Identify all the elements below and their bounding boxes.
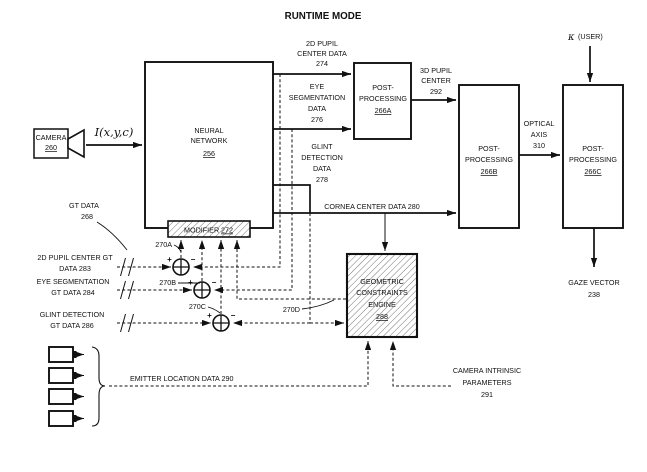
- adder-b-minus-sign: −: [212, 278, 217, 287]
- figure-title: RUNTIME MODE: [285, 11, 362, 22]
- gce-label-1: GEOMETRIC: [360, 277, 404, 286]
- background: [0, 0, 647, 472]
- post-b-label-2: PROCESSING: [465, 155, 513, 164]
- glint-label-2: DETECTION: [301, 153, 343, 162]
- post-a-label-1: POST-: [372, 83, 394, 92]
- kappa-symbol: κ: [567, 32, 575, 43]
- nn-label-2: NETWORK: [191, 136, 228, 145]
- gce-label-2: CONSTRAINTS: [356, 288, 408, 297]
- emitter-box: [49, 411, 73, 426]
- adder-c-minus-sign: −: [231, 311, 236, 320]
- glint-label-3: DATA: [313, 164, 331, 173]
- pupil2d-label-1: 2D PUPIL: [306, 39, 338, 48]
- pupil3d-label-2: CENTER: [421, 76, 451, 85]
- camera-ref: 260: [45, 143, 57, 152]
- post-b-ref: 266B: [481, 167, 498, 176]
- runtime-mode-diagram: RUNTIME MODE CAMERA 260 I(x,y,c) NEURAL …: [0, 0, 647, 472]
- gt-pupil-label-2: DATA 283: [59, 264, 91, 273]
- pupil2d-label-2: CENTER DATA: [297, 49, 347, 58]
- gt-data-label: GT DATA: [69, 201, 99, 210]
- eyeseg-label-3: DATA: [308, 104, 326, 113]
- optical-axis-label-2: AXIS: [531, 130, 548, 139]
- modifier-label: MODIFIER: [184, 226, 219, 235]
- glint-label-1: GLINT: [311, 142, 333, 151]
- glint-ref: 278: [316, 175, 328, 184]
- post-c-label-1: POST-: [582, 144, 604, 153]
- gce-label-3: ENGINE: [368, 300, 396, 309]
- gaze-label: GAZE VECTOR: [568, 278, 619, 287]
- post-a-ref: 266A: [375, 106, 392, 115]
- label-270b: 270B: [159, 278, 176, 287]
- modifier-ref: 272: [221, 226, 233, 235]
- nn-ref: 256: [203, 149, 215, 158]
- pupil2d-ref: 274: [316, 59, 328, 68]
- adder-a-minus-sign: −: [191, 255, 196, 264]
- adder-b-plus-sign: +: [188, 278, 193, 287]
- camera-intrinsic-label-1: CAMERA INTRINSIC: [453, 366, 521, 375]
- post-b-label-1: POST-: [478, 144, 500, 153]
- camera-intrinsic-ref: 291: [481, 390, 493, 399]
- emitter-location-label: EMITTER LOCATION DATA 290: [130, 374, 233, 383]
- gt-glint-label-2: GT DATA 286: [50, 321, 94, 330]
- camera-label: CAMERA: [36, 133, 67, 142]
- emitter-nub-icon: [73, 372, 77, 379]
- nn-label-1: NEURAL: [194, 126, 223, 135]
- kappa-label: (USER): [578, 32, 603, 41]
- cornea-label: CORNEA CENTER DATA 280: [324, 202, 420, 211]
- image-signal-label: I(x,y,c): [94, 125, 134, 139]
- eyeseg-ref: 276: [311, 115, 323, 124]
- post-c-label-2: PROCESSING: [569, 155, 617, 164]
- gt-eyeseg-label-1: EYE SEGMENTATION: [37, 277, 110, 286]
- optical-axis-ref: 310: [533, 141, 545, 150]
- emitter-nub-icon: [73, 393, 77, 400]
- gt-data-ref: 268: [81, 212, 93, 221]
- emitter-nub-icon: [73, 351, 77, 358]
- figure-canvas: RUNTIME MODE CAMERA 260 I(x,y,c) NEURAL …: [0, 0, 647, 472]
- camera-intrinsic-label-2: PARAMETERS: [463, 378, 512, 387]
- emitter-box: [49, 347, 73, 362]
- pupil3d-ref: 292: [430, 87, 442, 96]
- gaze-ref: 238: [588, 290, 600, 299]
- gt-glint-label-1: GLINT DETECTION: [40, 310, 105, 319]
- pupil3d-label-1: 3D PUPIL: [420, 66, 452, 75]
- eyeseg-label-2: SEGMENTATION: [289, 93, 345, 102]
- adder-a-plus-sign: +: [167, 255, 172, 264]
- neural-network-box: [145, 62, 273, 228]
- label-270a: 270A: [155, 240, 172, 249]
- adder-c-plus-sign: +: [207, 311, 212, 320]
- label-270d: 270D: [283, 305, 300, 314]
- optical-axis-label-1: OPTICAL: [524, 119, 555, 128]
- post-a-label-2: PROCESSING: [359, 94, 407, 103]
- emitter-nub-icon: [73, 415, 77, 422]
- gce-ref: 288: [376, 312, 388, 321]
- label-270c: 270C: [189, 302, 206, 311]
- post-c-ref: 266C: [584, 167, 601, 176]
- emitter-box: [49, 389, 73, 404]
- emitter-box: [49, 368, 73, 383]
- gt-pupil-label-1: 2D PUPIL CENTER GT: [37, 253, 113, 262]
- gt-eyeseg-label-2: GT DATA 284: [51, 288, 95, 297]
- eyeseg-label-1: EYE: [310, 82, 325, 91]
